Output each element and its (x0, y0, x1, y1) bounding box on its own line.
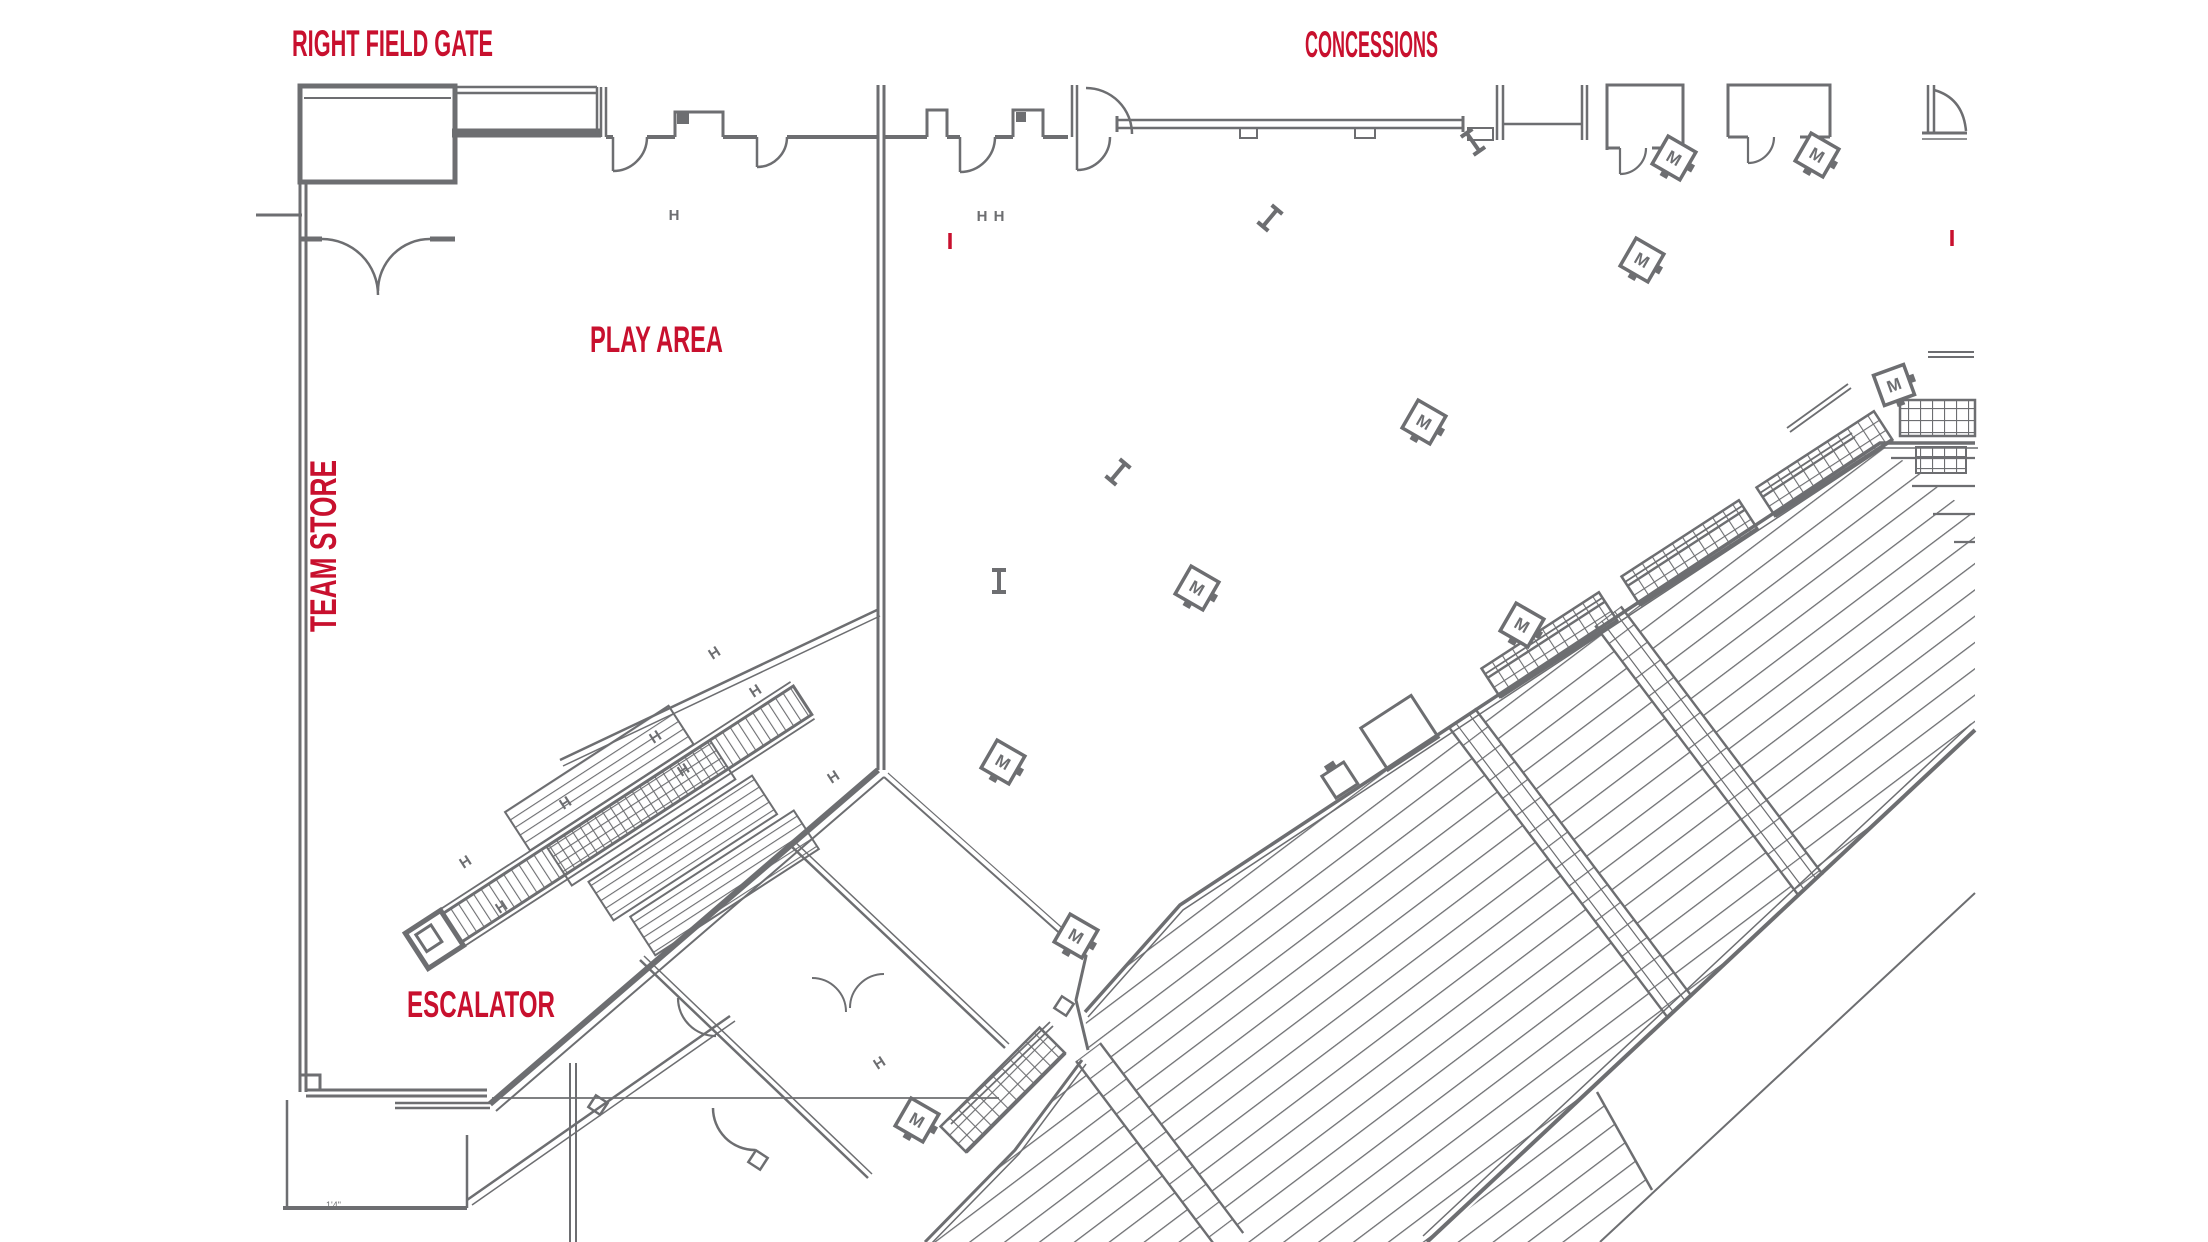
i-beam-column-icon (1461, 129, 1485, 155)
i-beam-column-icon (1106, 459, 1131, 485)
column-marker-icon: H (977, 208, 988, 225)
concession-cart-icon: M (978, 740, 1030, 792)
ada-platform-corner (1900, 400, 1975, 436)
column-marker-icon: H (994, 208, 1005, 225)
label-play-area: PLAY AREA (590, 319, 723, 360)
concession-cart-icon: M (1649, 136, 1701, 188)
door-swing (1077, 137, 1110, 170)
seating-bowl (925, 352, 1978, 1242)
floor-plan-drawing: MMMMMMMMMMHHHHHHHHHHHH RIGHT FIELD GATE … (0, 0, 2208, 1242)
column-marker-icon: H (746, 681, 764, 701)
label-right-field-gate: RIGHT FIELD GATE (292, 23, 493, 64)
dimension-annotation: 1'4" (326, 1200, 341, 1210)
entry-double-door (300, 239, 455, 295)
door-swing (613, 137, 647, 171)
concession-cart-icon: M (892, 1098, 944, 1150)
door-swing (960, 137, 995, 172)
concession-cart-icon: M (1792, 133, 1844, 185)
fixture-box (748, 1150, 767, 1169)
label-escalator: ESCALATOR (407, 984, 555, 1025)
column-marker-icon: H (870, 1053, 888, 1073)
door-swing (713, 1108, 755, 1150)
fixture-box (1054, 996, 1073, 1015)
label-team-store: TEAM STORE (303, 460, 344, 632)
concession-cart-icon: M (1172, 566, 1224, 618)
ada-platform-corner (1916, 447, 1966, 473)
door-swing (757, 137, 787, 167)
column-marker-icon: H (669, 207, 680, 224)
stadium-concourse-floor-plan: MMMMMMMMMMHHHHHHHHHHHH RIGHT FIELD GATE … (0, 0, 2208, 1242)
i-beam-column-icon (1258, 205, 1283, 231)
column-marker-icon: H (705, 643, 723, 663)
turnstile-counter (452, 87, 601, 133)
seating-rows-main (1085, 443, 1975, 1242)
double-door-swing (812, 974, 884, 1012)
guardrail (1787, 384, 1851, 432)
play-area-right-wall (878, 85, 884, 770)
team-store-wall (300, 182, 306, 1092)
wall-niche (927, 110, 947, 137)
single-door (1922, 85, 1967, 139)
label-concessions: CONCESSIONS (1305, 24, 1438, 65)
i-beam-column-icon (992, 570, 1006, 592)
concession-counter (1117, 116, 1493, 140)
column-marker-icon: H (456, 852, 474, 872)
play-area-bottom-wall (306, 1090, 487, 1096)
column-marker-icon: H (824, 767, 842, 787)
concession-cart-icon: M (1617, 238, 1669, 290)
concession-cart-icon: M (1051, 914, 1103, 966)
entry-vestibule (300, 86, 455, 182)
concession-cart-icon: M (1399, 400, 1451, 452)
